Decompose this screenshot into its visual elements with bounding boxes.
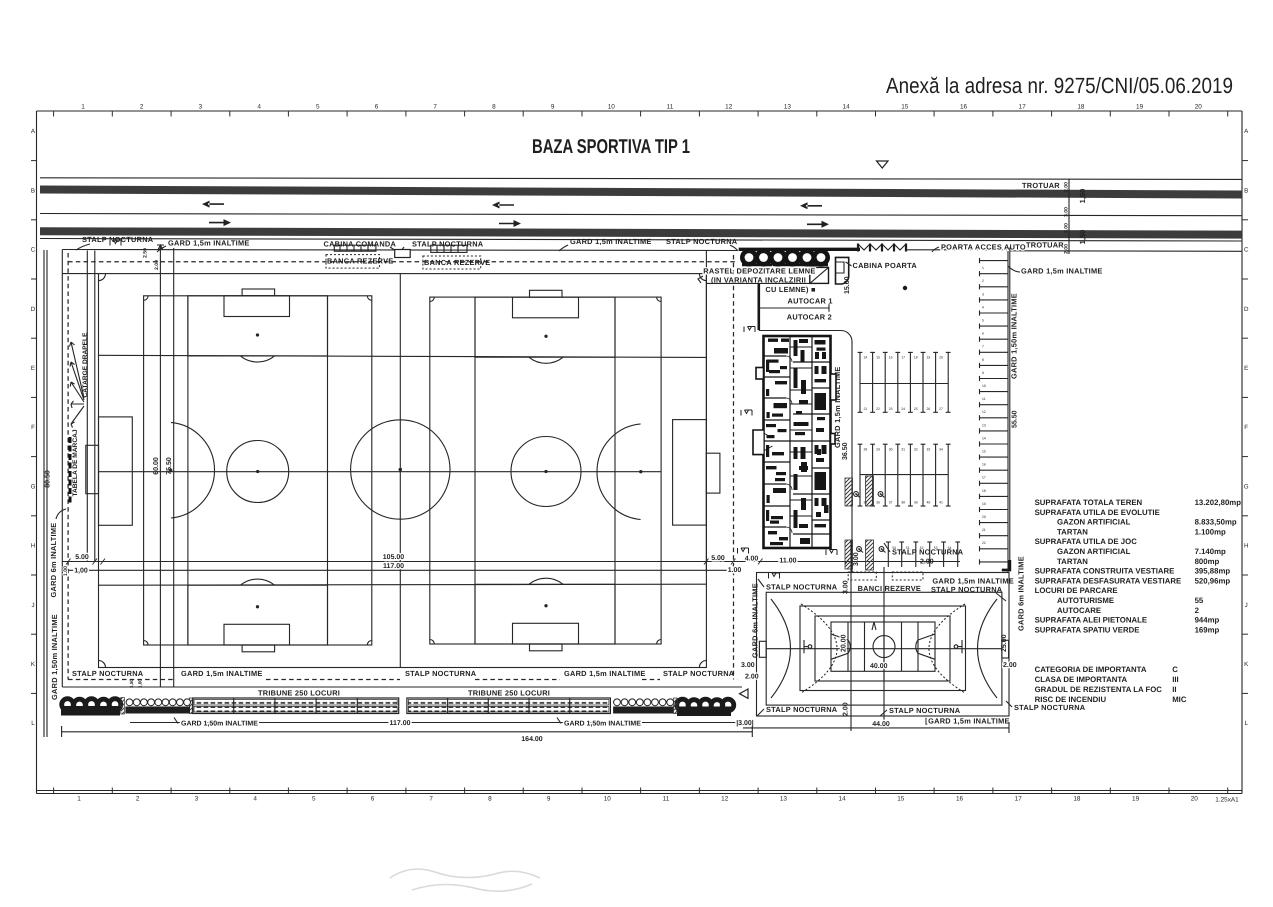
svg-text:33: 33 [927, 447, 931, 451]
svg-text:5: 5 [312, 796, 316, 803]
svg-text:1.00: 1.00 [728, 567, 742, 574]
svg-text:F: F [31, 424, 35, 431]
svg-text:28: 28 [864, 447, 868, 451]
svg-text:2: 2 [1195, 606, 1200, 615]
svg-text:10: 10 [604, 796, 612, 803]
svg-text:TRIBUNE 250 LOCURI: TRIBUNE 250 LOCURI [468, 689, 550, 698]
svg-text:STALP NOCTURNA: STALP NOCTURNA [72, 669, 144, 678]
svg-text:L: L [1244, 720, 1248, 727]
svg-text:520,96mp: 520,96mp [1195, 576, 1231, 585]
svg-text:GARD 1,50m INALTIME: GARD 1,50m INALTIME [181, 721, 258, 728]
svg-text:20.00: 20.00 [841, 634, 848, 652]
svg-text:32: 32 [914, 447, 918, 451]
svg-text:9: 9 [547, 796, 551, 803]
svg-text:LOCURI DE PARCARE: LOCURI DE PARCARE [1035, 586, 1118, 595]
svg-text:10: 10 [982, 384, 986, 388]
svg-text:SUPRAFATA ALEI PIETONALE: SUPRAFATA ALEI PIETONALE [1035, 616, 1147, 625]
svg-text:41: 41 [939, 501, 943, 505]
svg-text:2.00: 2.00 [920, 559, 934, 566]
svg-text:2.00: 2.00 [154, 260, 160, 270]
svg-text:7: 7 [982, 345, 984, 349]
svg-text:5: 5 [316, 104, 320, 111]
svg-text:RASTEL DEPOZITARE LEMNE: RASTEL DEPOZITARE LEMNE [703, 267, 815, 276]
svg-text:2.00: 2.00 [1003, 662, 1017, 669]
svg-text:2.00: 2.00 [1064, 244, 1070, 254]
svg-text:1,50: 1,50 [129, 679, 134, 688]
svg-text:395,88mp: 395,88mp [1195, 567, 1231, 576]
svg-text:II: II [1172, 685, 1176, 694]
svg-text:GAZON ARTIFICIAL: GAZON ARTIFICIAL [1057, 518, 1131, 527]
svg-text:CU LEMNE) ■: CU LEMNE) ■ [765, 285, 816, 294]
svg-text:5.00: 5.00 [711, 555, 725, 562]
svg-text:17: 17 [1019, 104, 1027, 111]
svg-text:GAZON ARTIFICIAL: GAZON ARTIFICIAL [1057, 547, 1131, 556]
svg-text:24: 24 [901, 407, 905, 411]
svg-text:22: 22 [982, 541, 986, 545]
svg-text:15: 15 [876, 356, 880, 360]
svg-text:30: 30 [889, 447, 893, 451]
svg-text:STALP NOCTURNA: STALP NOCTURNA [889, 706, 961, 715]
svg-text:55.50: 55.50 [1012, 410, 1019, 428]
svg-text:15: 15 [901, 104, 909, 111]
svg-text:GARD 1,5m INALTIME: GARD 1,5m INALTIME [570, 237, 652, 246]
svg-text:18: 18 [982, 489, 986, 493]
svg-text:GARD 1,50m INALTIME: GARD 1,50m INALTIME [1010, 293, 1019, 379]
svg-text:34: 34 [939, 447, 943, 451]
svg-text:12: 12 [725, 104, 733, 111]
svg-text:L: L [31, 720, 35, 727]
svg-text:3.00: 3.00 [741, 662, 755, 669]
svg-text:3: 3 [982, 292, 984, 296]
svg-text:16: 16 [960, 104, 968, 111]
svg-text:E: E [1244, 365, 1248, 372]
svg-text:800mp: 800mp [1195, 557, 1220, 566]
svg-text:22: 22 [876, 407, 880, 411]
svg-text:39: 39 [914, 501, 918, 505]
svg-text:80.50: 80.50 [45, 470, 52, 488]
svg-text:CATEGORIA DE IMPORTANTA: CATEGORIA DE IMPORTANTA [1035, 665, 1147, 674]
svg-text:C: C [1244, 247, 1249, 254]
svg-text:AUTOCAR 1: AUTOCAR 1 [788, 297, 833, 306]
svg-text:1.25xA1: 1.25xA1 [1215, 797, 1239, 804]
svg-text:13: 13 [780, 796, 788, 803]
svg-text:GARD 6m INALTIME: GARD 6m INALTIME [1017, 556, 1026, 631]
svg-text:BANCA REZERVE: BANCA REZERVE [424, 258, 491, 267]
svg-text:STALP NOCTURNA: STALP NOCTURNA [766, 705, 838, 714]
svg-text:GRADUL DE REZISTENTA LA FOC: GRADUL DE REZISTENTA LA FOC [1035, 685, 1163, 694]
svg-text:AUTOCAR 2: AUTOCAR 2 [787, 313, 832, 322]
svg-text:14: 14 [843, 104, 851, 111]
svg-text:27: 27 [939, 407, 943, 411]
svg-text:SUPRAFATA UTILA DE EVOLUTIE: SUPRAFATA UTILA DE EVOLUTIE [1035, 508, 1160, 517]
svg-text:40: 40 [927, 501, 931, 505]
svg-text:SUPRAFATA UTILA DE JOC: SUPRAFATA UTILA DE JOC [1035, 537, 1138, 546]
svg-text:TRIBUNE 250 LOCURI: TRIBUNE 250 LOCURI [258, 689, 340, 698]
svg-text:Anexă la adresa nr. 9275/CNI/0: Anexă la adresa nr. 9275/CNI/05.06.2019 [886, 73, 1233, 98]
svg-text:2: 2 [140, 104, 144, 111]
svg-text:1.100mp: 1.100mp [1195, 527, 1226, 536]
svg-text:D: D [31, 306, 36, 313]
svg-text:36: 36 [876, 501, 880, 505]
svg-text:3.00: 3.00 [853, 552, 860, 566]
svg-text:1,00: 1,00 [74, 568, 88, 575]
svg-text:19: 19 [1132, 796, 1140, 803]
svg-text:4: 4 [257, 104, 261, 111]
svg-text:D: D [1244, 306, 1249, 313]
svg-text:6: 6 [982, 332, 984, 336]
svg-text:20: 20 [1191, 796, 1199, 803]
svg-text:AUTOCARE: AUTOCARE [1057, 606, 1101, 615]
svg-text:17: 17 [901, 356, 905, 360]
svg-text:|3.00|: |3.00| [736, 719, 754, 727]
svg-text:8: 8 [488, 796, 492, 803]
svg-text:11.00: 11.00 [779, 558, 796, 565]
svg-text:1,00: 1,00 [138, 679, 143, 688]
svg-text:G: G [31, 483, 36, 490]
svg-text:STALP NOCTURNA: STALP NOCTURNA [892, 548, 964, 557]
svg-text:117.00: 117.00 [383, 563, 404, 570]
svg-text:E: E [31, 365, 35, 372]
svg-text:21: 21 [864, 407, 868, 411]
svg-text:1: 1 [81, 104, 85, 111]
svg-text:164.00: 164.00 [521, 736, 543, 743]
svg-text:POARTA ACCES AUTO: POARTA ACCES AUTO [941, 243, 1026, 252]
svg-text:40.00: 40.00 [870, 663, 888, 670]
svg-text:STALP NOCTURNA: STALP NOCTURNA [412, 240, 484, 249]
svg-text:4.00: 4.00 [745, 556, 759, 563]
svg-text:C: C [31, 247, 36, 254]
svg-text:B: B [31, 187, 35, 194]
svg-text:13: 13 [784, 104, 792, 111]
svg-text:8.833,50mp: 8.833,50mp [1195, 518, 1237, 527]
svg-text:F: F [1244, 424, 1248, 431]
svg-text:GARD 1,5m INALTIME: GARD 1,5m INALTIME [1021, 267, 1103, 276]
svg-text:MIC: MIC [1172, 695, 1187, 704]
svg-text:TABELA DE MARCAJ: TABELA DE MARCAJ [72, 429, 79, 496]
svg-text:GARD 1,50m INALTIME: GARD 1,50m INALTIME [564, 721, 641, 728]
svg-text:GARD 6m INALTIME: GARD 6m INALTIME [49, 523, 58, 598]
svg-text:CABINA POARTA: CABINA POARTA [853, 261, 918, 270]
svg-text:TROTUAR: TROTUAR [1022, 181, 1060, 190]
svg-text:26: 26 [927, 407, 931, 411]
svg-text:STALP NOCTURNA: STALP NOCTURNA [663, 669, 735, 678]
svg-text:B: B [1244, 187, 1248, 194]
svg-text:37: 37 [889, 501, 893, 505]
svg-text:4: 4 [982, 305, 984, 309]
svg-text:16: 16 [982, 463, 986, 467]
svg-text:21: 21 [982, 528, 986, 532]
svg-text:55: 55 [1195, 596, 1204, 605]
svg-text:BAZA SPORTIVA TIP 1: BAZA SPORTIVA TIP 1 [532, 136, 690, 158]
svg-text:105.00: 105.00 [383, 554, 405, 561]
svg-text:TARTAN: TARTAN [1057, 557, 1088, 566]
svg-text:STALP NOCTURNA: STALP NOCTURNA [766, 583, 838, 592]
svg-text:1: 1 [982, 266, 984, 270]
svg-text:BANCI REZERVE: BANCI REZERVE [858, 584, 921, 593]
svg-text:38: 38 [901, 501, 905, 505]
svg-text:14: 14 [864, 356, 868, 360]
svg-text:23: 23 [889, 407, 893, 411]
svg-text:12: 12 [721, 796, 729, 803]
svg-text:J: J [1245, 602, 1248, 609]
svg-text:5: 5 [982, 319, 984, 323]
svg-text:15: 15 [897, 796, 905, 803]
svg-text:2.00: 2.00 [1064, 182, 1070, 192]
svg-text:44.00: 44.00 [872, 721, 890, 728]
svg-text:12: 12 [982, 410, 986, 414]
svg-text:GARD 1,5m INALTIME: GARD 1,5m INALTIME [168, 239, 250, 248]
svg-text:20: 20 [1195, 104, 1203, 111]
svg-text:SUPRAFATA TOTALA TEREN: SUPRAFATA TOTALA TEREN [1035, 498, 1143, 507]
svg-text:18: 18 [1073, 796, 1081, 803]
svg-text:J: J [31, 602, 34, 609]
svg-text:1,50: 1,50 [1078, 189, 1087, 204]
svg-text:4: 4 [253, 796, 257, 803]
svg-text:G: G [1244, 483, 1249, 490]
svg-text:C: C [1172, 665, 1178, 674]
svg-text:14: 14 [982, 436, 986, 440]
svg-text:2.00: 2.00 [745, 674, 759, 681]
svg-text:19: 19 [982, 502, 986, 506]
svg-text:3.00: 3.00 [1064, 207, 1070, 217]
svg-text:8: 8 [492, 104, 496, 111]
svg-text:29: 29 [876, 447, 880, 451]
svg-text:15: 15 [982, 450, 986, 454]
svg-text:GARD 1,5m INALTIME: GARD 1,5m INALTIME [181, 669, 263, 678]
svg-text:RISC DE INCENDIU: RISC DE INCENDIU [1035, 695, 1107, 704]
svg-text:SUPRAFATA SPATIU VERDE: SUPRAFATA SPATIU VERDE [1035, 625, 1140, 634]
svg-text:25: 25 [914, 407, 918, 411]
svg-text:11: 11 [663, 796, 670, 803]
svg-text:7: 7 [433, 104, 437, 111]
svg-text:9: 9 [982, 371, 984, 375]
svg-text:25.00: 25.00 [1001, 634, 1008, 652]
svg-text:2.50: 2.50 [143, 248, 149, 258]
svg-text:⌊GARD 1,5m INALTIME: ⌊GARD 1,5m INALTIME [925, 717, 1010, 726]
svg-text:18: 18 [1077, 104, 1085, 111]
svg-text:10: 10 [608, 104, 616, 111]
svg-text:8: 8 [982, 358, 984, 362]
svg-text:STALP NOCTURNA: STALP NOCTURNA [931, 585, 1003, 594]
svg-text:6: 6 [375, 104, 379, 111]
svg-text:CATARGE DRAPELE: CATARGE DRAPELE [82, 332, 89, 398]
svg-text:III: III [1172, 675, 1179, 684]
svg-text:169mp: 169mp [1195, 625, 1220, 634]
svg-text:3: 3 [199, 104, 203, 111]
svg-text:13: 13 [982, 423, 986, 427]
svg-text:2.00: 2.00 [843, 702, 850, 716]
svg-text:16: 16 [889, 356, 893, 360]
svg-text:2: 2 [982, 279, 984, 283]
svg-text:2: 2 [136, 796, 140, 803]
svg-text:20: 20 [939, 356, 943, 360]
svg-text:TROTUAR: TROTUAR [1026, 241, 1064, 250]
svg-text:7.140mp: 7.140mp [1195, 547, 1226, 556]
svg-text:5.00: 5.00 [75, 554, 89, 561]
svg-text:14: 14 [839, 796, 847, 803]
svg-text:STALP NOCTURNA: STALP NOCTURNA [666, 237, 738, 246]
svg-text:TARTAN: TARTAN [1057, 527, 1088, 536]
svg-text:H: H [1244, 543, 1248, 550]
svg-text:7: 7 [429, 796, 433, 803]
svg-text:16: 16 [956, 796, 964, 803]
svg-text:3.00: 3.00 [843, 580, 850, 594]
svg-text:GARD 6m INALTIME: GARD 6m INALTIME [751, 583, 760, 658]
svg-text:17: 17 [982, 476, 986, 480]
svg-text:15.00: 15.00 [844, 276, 851, 294]
svg-text:36.50: 36.50 [842, 442, 849, 460]
svg-text:117.00: 117.00 [389, 720, 410, 727]
svg-text:20: 20 [982, 515, 986, 519]
svg-text:STALP NOCTURNA: STALP NOCTURNA [1014, 703, 1086, 712]
svg-text:17: 17 [1015, 796, 1023, 803]
svg-text:9: 9 [551, 104, 555, 111]
svg-text:19: 19 [927, 356, 931, 360]
svg-text:31: 31 [901, 447, 905, 451]
svg-text:3.00: 3.00 [1064, 223, 1070, 233]
svg-text:1.00: 1.00 [63, 566, 69, 576]
svg-text:13.202,80mp: 13.202,80mp [1195, 498, 1242, 507]
svg-text:944mp: 944mp [1195, 616, 1220, 625]
svg-text:3: 3 [195, 796, 199, 803]
svg-text:GARD 1,5m INALTIME: GARD 1,5m INALTIME [564, 669, 646, 678]
svg-text:SUPRAFATA CONSTRUITA VESTIARE: SUPRAFATA CONSTRUITA VESTIARE [1035, 567, 1175, 576]
svg-text:CLASA DE IMPORTANTA: CLASA DE IMPORTANTA [1035, 675, 1128, 684]
svg-text:H: H [31, 543, 35, 550]
svg-text:SUPRAFATA DESFASURATA VESTIARE: SUPRAFATA DESFASURATA VESTIARE [1035, 576, 1182, 585]
svg-text:BANCA REZERVE: BANCA REZERVE [327, 257, 394, 266]
svg-text:1: 1 [77, 796, 81, 803]
svg-text:18: 18 [914, 356, 918, 360]
svg-text:11: 11 [667, 104, 674, 111]
svg-text:6: 6 [371, 796, 375, 803]
svg-text:AUTOTURISME: AUTOTURISME [1057, 596, 1114, 605]
svg-text:STALP NOCTURNA: STALP NOCTURNA [405, 669, 477, 678]
svg-text:GARD 1,50m INALTIME: GARD 1,50m INALTIME [50, 614, 59, 700]
svg-text:19: 19 [1136, 104, 1144, 111]
svg-text:1,50: 1,50 [1078, 230, 1087, 245]
svg-text:11: 11 [982, 397, 986, 401]
